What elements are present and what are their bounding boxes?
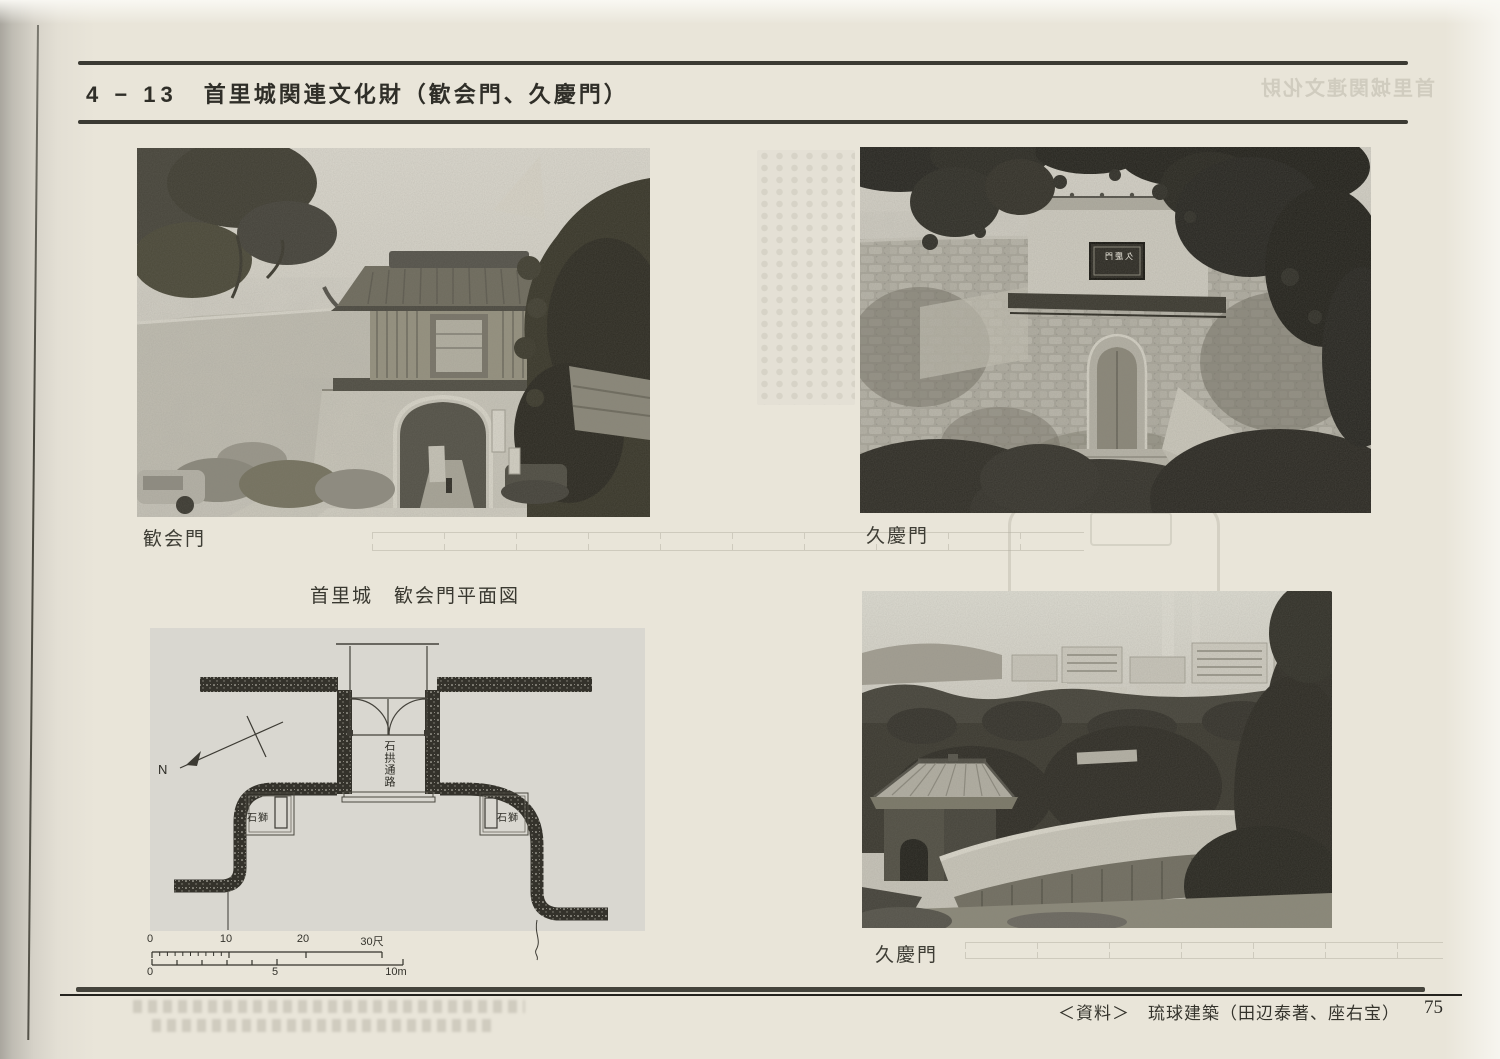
page-number: 75 [1424,997,1443,1019]
scale-shaku-10: 10 [220,933,232,945]
section-number: 4 − 13 [86,82,178,107]
plan-north-label: N [158,762,167,777]
scale-shaku-30: 30尺 [360,933,383,949]
plan-passage-label: 石拱通路 [379,740,395,788]
kyukeimon-above-photo [862,591,1332,928]
scale-m-5: 5 [272,966,278,978]
ghost-scalebar-bleedthrough-2 [965,938,1443,964]
kyukeimon-above-photo-illustration [862,591,1332,928]
ghost-figure-detail-bleedthrough [1090,512,1172,546]
scan-top-edge [0,0,1500,24]
ghost-footer-text-bleedthrough-2 [152,1019,497,1032]
ghost-footer-text-bleedthrough [133,1000,525,1013]
plan-stone-lion-label-right: 石獅 [497,809,519,824]
ghost-scalebar-bleedthrough [372,528,1084,554]
kyukeimon-above-caption: 久慶門 [875,940,938,967]
kankaimon-photo-illustration [137,148,650,517]
section-title: 首里城関連文化財（歓会門、久慶門） [204,82,629,107]
kyukeimon-plaque-text: 久慶門 [1093,251,1143,262]
page-header: 4 − 13首里城関連文化財（歓会門、久慶門） [86,77,629,109]
plan-title: 首里城 歓会門平面図 [180,581,650,608]
kyukeimon-photo-illustration [860,147,1371,513]
scale-m-0: 0 [147,966,153,978]
header-rule-top [78,61,1408,65]
scanned-document-page: 首里城関連文化財 4 − 13首里城関連文化財（歓会門、久慶門） [0,0,1500,1059]
scale-shaku-0: 0 [147,933,153,945]
header-rule-bottom [78,120,1408,124]
footer-rule-thin [60,994,1462,996]
kyukeimon-caption: 久慶門 [866,521,929,548]
plan-stone-lion-label-left: 石獅 [247,809,269,824]
source-citation: ＜資料＞ 琉球建築（田辺泰著、座右宝） [1020,999,1400,1024]
kankaimon-caption: 歓会門 [143,524,206,551]
kyukeimon-photo [860,147,1371,513]
scale-m-10: 10m [385,966,406,978]
ghost-mirrored-header-text: 首里城関連文化財 [1245,72,1435,106]
book-gutter-shadow [0,0,95,1059]
footer-rule-thick [76,987,1425,992]
ghost-stonewall-bleedthrough [757,150,855,405]
scan-right-edge [1445,0,1500,1059]
kankaimon-photo [137,148,650,517]
scale-shaku-20: 20 [297,933,309,945]
